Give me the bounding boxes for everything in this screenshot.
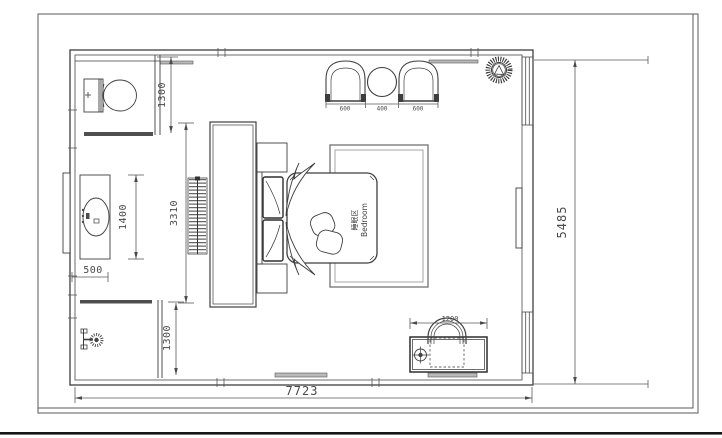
tea-table [368,68,397,97]
wall-niche [516,188,522,248]
wardrobe-cabinet [210,122,256,307]
dim-toilet-depth: 1300 [157,82,168,108]
bed-zone-label-en: Bedroom [360,203,369,237]
armchair-right [398,61,439,102]
dim-armchair-right: 600 [413,106,424,113]
window-bottom-edge [0,432,722,435]
nightstand-bottom [257,264,287,293]
dim-desk-width: 1200 [442,315,459,323]
toilet-room-low-wall [84,132,153,136]
radiator-hatch [188,177,207,255]
window-right-bottom [522,312,533,373]
shower-head [81,329,102,349]
dim-vanity-length: 1400 [118,204,129,230]
shower-room [80,300,162,378]
left-wall-door-leaf [63,173,70,253]
nightstand-top [257,143,287,172]
shower-room-low-wall [80,300,152,304]
potted-plant [488,59,510,81]
floor-plan-drawing: 睡眠区 Bedroom [0,0,722,438]
pillows [263,177,283,261]
dim-overall-width: 7723 [286,384,319,398]
dim-armchair-left: 600 [340,106,351,113]
faucet [82,209,90,223]
armchair-left [325,61,366,102]
toilet-room [75,55,160,136]
dim-vanity-width: 500 [83,265,103,276]
bed-zone-label-cn: 睡眠区 [351,210,359,231]
dim-tv-wall: 3310 [169,200,180,226]
headboard [257,172,262,264]
window-right-top [522,57,533,125]
sink-vanity [80,175,110,259]
toilet-fixture [84,79,137,112]
bed: 睡眠区 Bedroom [257,143,377,293]
dim-overall-height: 5485 [555,206,569,239]
floor-plan-canvas: 睡眠区 Bedroom [0,0,722,438]
dim-tea-table: 400 [377,106,388,113]
dim-shower-depth: 1300 [162,325,173,351]
